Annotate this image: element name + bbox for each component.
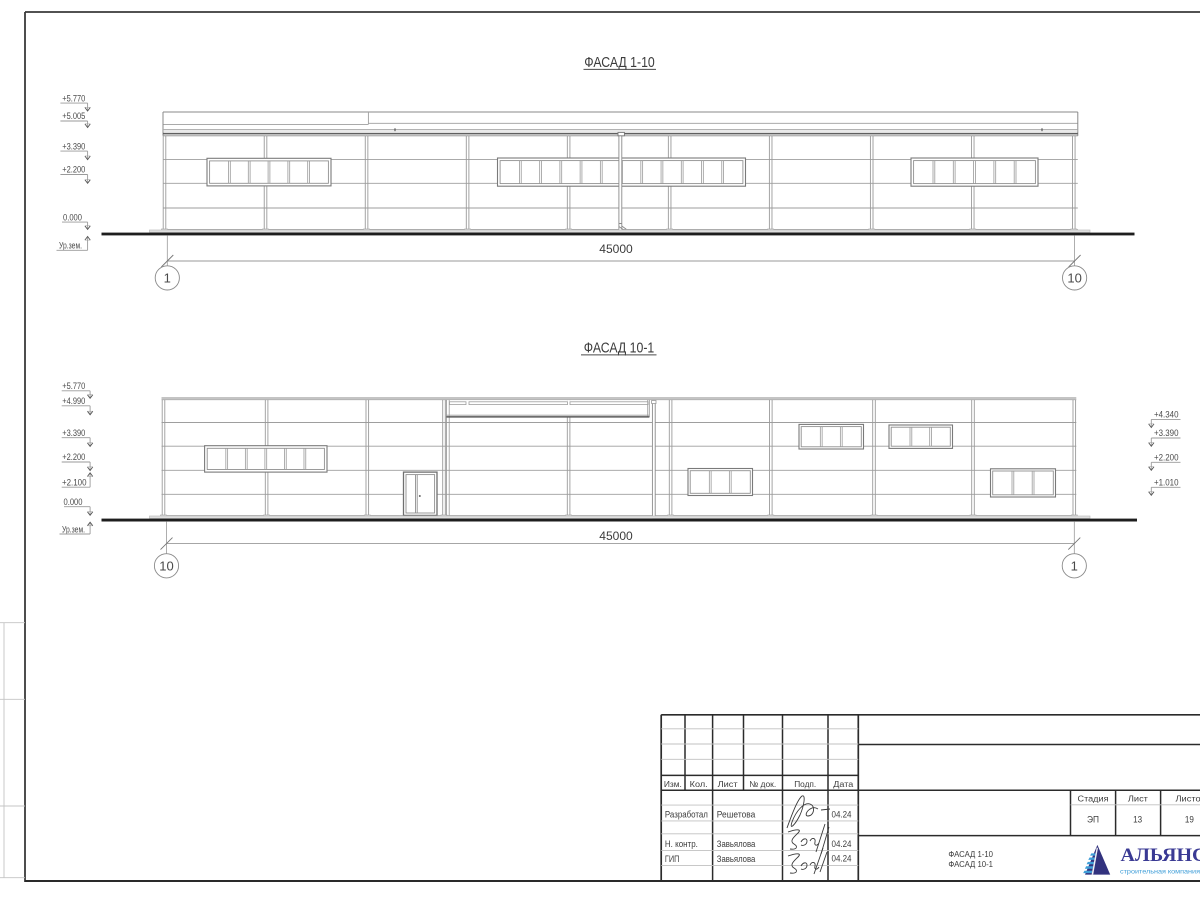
svg-text:+2.100: +2.100	[62, 477, 87, 487]
svg-text:№ док.: № док.	[749, 779, 776, 789]
svg-text:+3.390: +3.390	[1154, 428, 1179, 438]
svg-text:Завьялова: Завьялова	[717, 854, 756, 864]
svg-text:+5.770: +5.770	[62, 381, 85, 391]
svg-text:+4.990: +4.990	[62, 396, 85, 406]
svg-text:+2.200: +2.200	[62, 165, 85, 175]
svg-text:0.000: 0.000	[64, 497, 83, 507]
svg-text:Изм.: Изм.	[664, 779, 682, 789]
svg-text:Дата: Дата	[833, 779, 853, 789]
svg-text:Кол.: Кол.	[690, 779, 708, 789]
svg-text:ГИП: ГИП	[665, 854, 680, 864]
svg-text:+3.390: +3.390	[62, 428, 85, 438]
svg-text:04.24: 04.24	[832, 854, 852, 864]
svg-text:04.24: 04.24	[832, 809, 852, 819]
svg-text:10: 10	[159, 559, 173, 574]
svg-text:Лист: Лист	[718, 779, 738, 789]
svg-text:+5.005: +5.005	[62, 111, 85, 121]
svg-text:АЛЬЯНС: АЛЬЯНС	[1121, 845, 1200, 866]
svg-text:+2.200: +2.200	[62, 452, 85, 462]
svg-text:Ур.зем.: Ур.зем.	[59, 240, 82, 250]
svg-text:0.000: 0.000	[63, 212, 82, 222]
svg-text:+2.200: +2.200	[1154, 453, 1179, 463]
svg-text:Разработал: Разработал	[665, 810, 708, 820]
svg-text:Лист: Лист	[1128, 794, 1148, 804]
svg-text:+1.010: +1.010	[1154, 478, 1179, 488]
svg-text:Н. контр.: Н. контр.	[665, 839, 698, 849]
svg-text:ЭП: ЭП	[1087, 815, 1099, 825]
svg-text:13: 13	[1133, 815, 1142, 825]
svg-text:+5.770: +5.770	[62, 93, 85, 103]
svg-text:45000: 45000	[599, 529, 633, 543]
svg-text:Решетова: Решетова	[717, 810, 756, 820]
svg-text:Ур.зем.: Ур.зем.	[62, 525, 85, 535]
svg-text:1: 1	[1071, 559, 1078, 574]
svg-text:19: 19	[1185, 815, 1194, 825]
svg-text:строительная компания: строительная компания	[1120, 869, 1200, 876]
svg-text:+3.390: +3.390	[62, 141, 85, 151]
svg-text:04.24: 04.24	[832, 839, 852, 849]
svg-text:ФАСАД 10-1: ФАСАД 10-1	[948, 860, 993, 869]
svg-text:ФАСАД 1-10: ФАСАД 1-10	[584, 54, 655, 71]
svg-text:Стадия: Стадия	[1078, 794, 1109, 804]
svg-text:ФАСАД 1-10: ФАСАД 1-10	[948, 850, 993, 859]
svg-text:+4.340: +4.340	[1154, 410, 1179, 420]
svg-text:ФАСАД 10-1: ФАСАД 10-1	[584, 340, 655, 357]
svg-text:Завьялова: Завьялова	[717, 839, 756, 849]
svg-text:Подп.: Подп.	[794, 779, 816, 789]
svg-text:1: 1	[164, 271, 171, 286]
svg-text:Листов: Листов	[1176, 794, 1200, 804]
svg-text:45000: 45000	[599, 242, 633, 256]
svg-text:10: 10	[1067, 271, 1081, 286]
